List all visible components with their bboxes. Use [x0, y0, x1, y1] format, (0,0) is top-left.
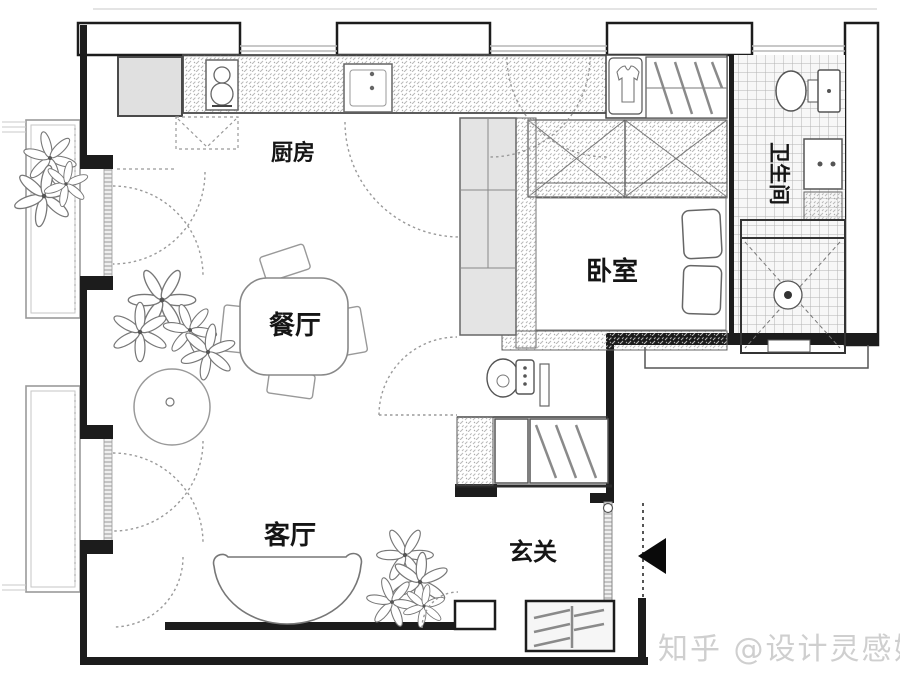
hatch-column	[457, 417, 493, 485]
plant-icon	[100, 268, 239, 385]
stove-icon	[206, 60, 238, 110]
refrigerator-icon	[118, 57, 182, 116]
kitchen-label: 厨房	[271, 140, 315, 166]
hall-wardrobe-icon	[530, 419, 608, 483]
sliding-door-icon	[604, 502, 612, 600]
bed-platform-top	[536, 183, 727, 198]
entry-area	[455, 502, 666, 651]
shelf-icon	[646, 57, 727, 118]
pillow-icon	[682, 209, 722, 259]
storage-cabinet-strip	[460, 118, 516, 335]
right-exterior-wall	[845, 23, 878, 345]
bathroom-partition-wall	[729, 55, 734, 333]
balcony-window-top	[104, 166, 112, 278]
round-rug-icon	[134, 369, 210, 445]
shirt-wardrobe-icon	[609, 58, 642, 114]
vanity-sink-icon	[804, 139, 842, 189]
balcony-window-bottom	[104, 436, 112, 544]
floor-plan-drawing: 厨房 餐厅 卧室 卫生间 客厅 玄关 知乎 @设计灵感姐 知乎 @设计灵感姐	[0, 0, 900, 687]
corridor-block	[457, 359, 608, 485]
dining-label: 餐厅	[269, 311, 321, 341]
bathroom-label: 卫生间	[767, 142, 791, 205]
watermark: 知乎 @设计灵感姐 知乎 @设计灵感姐	[658, 632, 900, 669]
living-room	[134, 369, 361, 624]
shoe-cabinet-icon	[526, 601, 614, 651]
side-panel	[540, 364, 549, 406]
step-box	[455, 601, 495, 629]
range-hood-dashed	[117, 117, 238, 169]
hall-closet-top	[606, 55, 727, 118]
watermark-text: 知乎 @设计灵感姐	[658, 632, 900, 667]
washbasin-icon	[487, 359, 534, 397]
bathroom-hatch-patch	[804, 192, 842, 220]
living-label: 客厅	[264, 520, 316, 551]
cabinet-door	[495, 419, 528, 483]
pillow-icon	[682, 265, 722, 314]
balcony-bottom-left	[2, 386, 80, 592]
chair-icon	[259, 244, 311, 283]
bed-platform-bottom	[502, 331, 727, 350]
kitchen-sink-icon	[344, 64, 392, 112]
plant-icon	[360, 528, 460, 634]
bedroom-label: 卧室	[586, 256, 638, 287]
entry-label: 玄关	[509, 538, 557, 566]
sofa-icon	[214, 554, 362, 624]
floor-plan-canvas: 厨房 餐厅 卧室 卫生间 客厅 玄关 知乎 @设计灵感姐 知乎 @设计灵感姐	[0, 0, 900, 687]
